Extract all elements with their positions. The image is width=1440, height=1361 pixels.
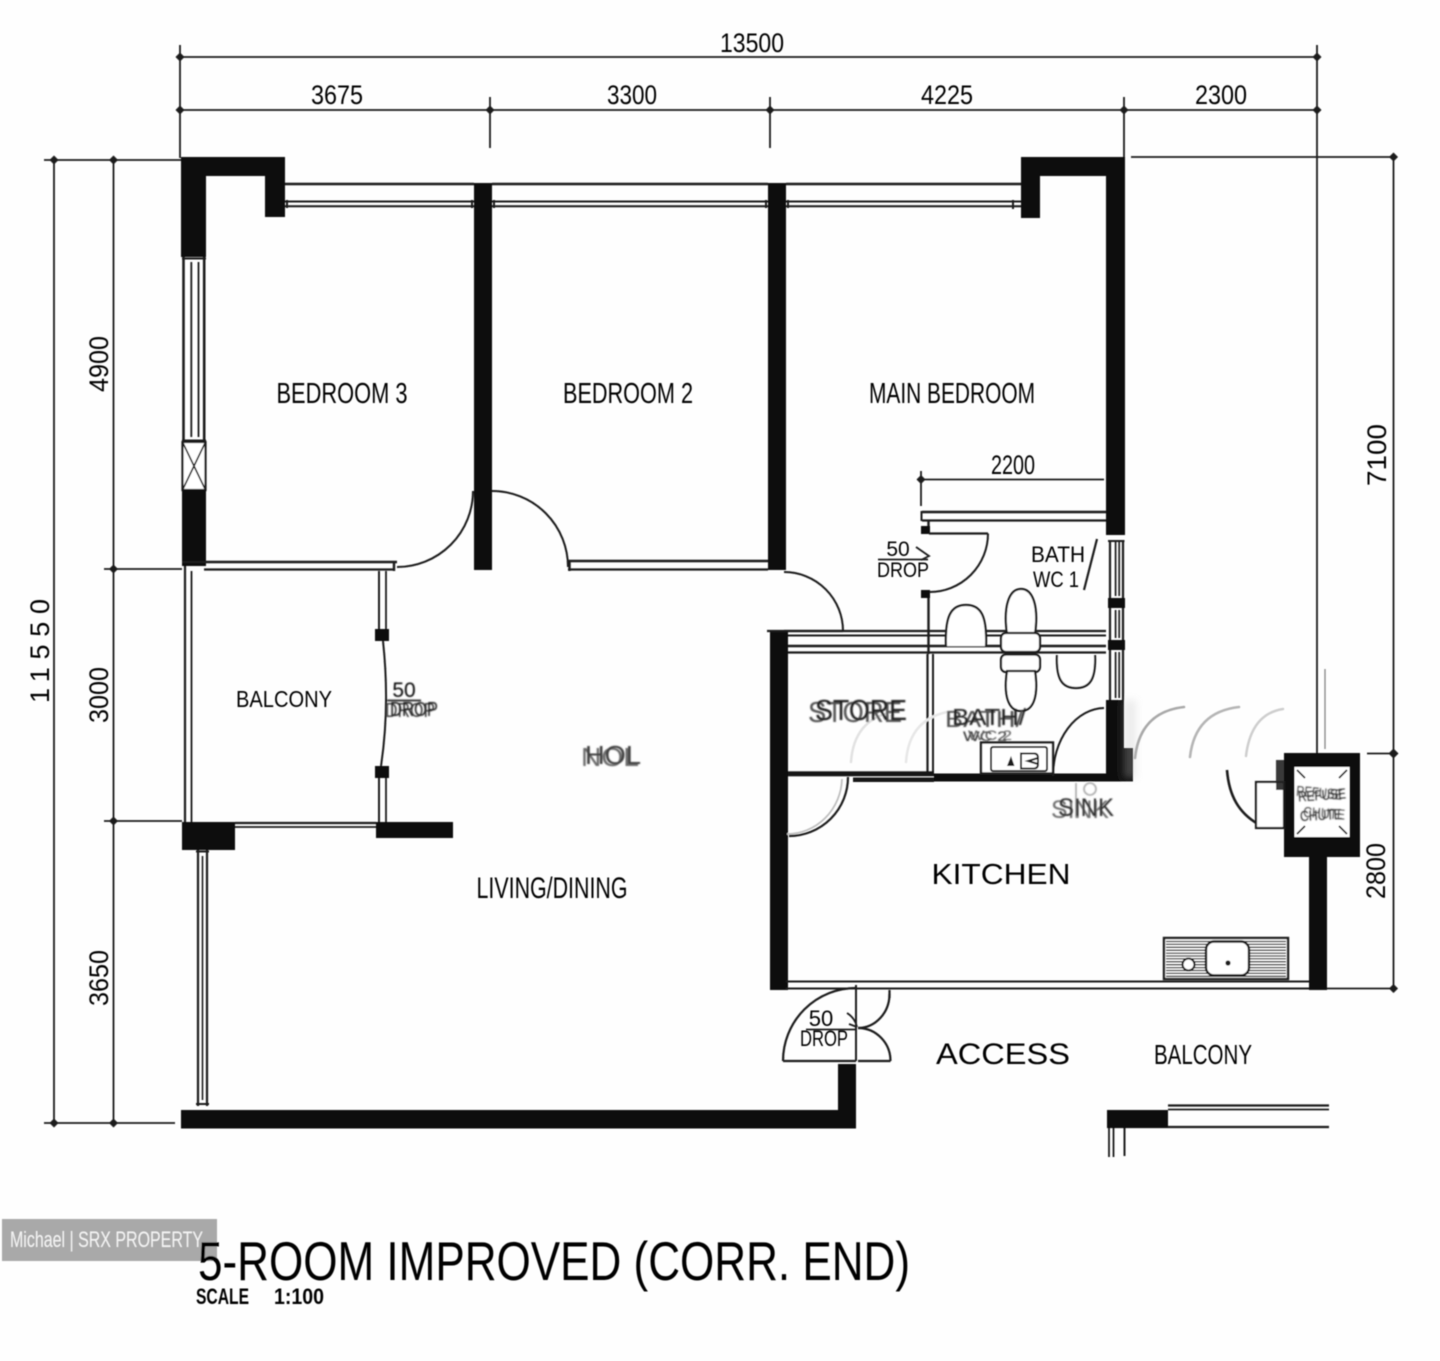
svg-text:BATH: BATH bbox=[1031, 542, 1085, 567]
svg-text:WC 2: WC 2 bbox=[968, 727, 1012, 743]
svg-text:BEDROOM 3: BEDROOM 3 bbox=[277, 378, 408, 410]
svg-text:LIVING/DINING: LIVING/DINING bbox=[477, 872, 628, 905]
svg-text:CHUTE: CHUTE bbox=[1303, 805, 1346, 824]
svg-text:DROP: DROP bbox=[390, 699, 438, 721]
svg-text:BEDROOM 2: BEDROOM 2 bbox=[563, 378, 693, 410]
svg-text:Michael | SRX PROPERTY: Michael | SRX PROPERTY bbox=[10, 1227, 203, 1252]
svg-text:2300: 2300 bbox=[1195, 80, 1247, 110]
svg-text:MAIN BEDROOM: MAIN BEDROOM bbox=[869, 378, 1035, 410]
svg-text:STORE: STORE bbox=[815, 695, 907, 727]
svg-text:2200: 2200 bbox=[991, 450, 1035, 480]
svg-text:5-ROOM IMPROVED (CORR. END): 5-ROOM IMPROVED (CORR. END) bbox=[198, 1230, 910, 1292]
svg-text:4225: 4225 bbox=[921, 80, 973, 110]
svg-text:1:100: 1:100 bbox=[274, 1284, 324, 1309]
svg-text:3000: 3000 bbox=[84, 667, 114, 723]
svg-text:HOL: HOL bbox=[585, 740, 641, 770]
svg-text:2800: 2800 bbox=[1361, 843, 1391, 899]
svg-text:WC 1: WC 1 bbox=[1033, 567, 1079, 592]
svg-text:BALCONY: BALCONY bbox=[236, 686, 332, 712]
svg-text:3300: 3300 bbox=[607, 80, 657, 110]
svg-text:BALCONY: BALCONY bbox=[1154, 1039, 1252, 1070]
svg-text:3650: 3650 bbox=[84, 950, 114, 1006]
svg-text:DROP: DROP bbox=[800, 1026, 848, 1051]
svg-text:3675: 3675 bbox=[311, 80, 363, 110]
svg-text:ACCESS: ACCESS bbox=[936, 1038, 1070, 1071]
svg-text:13500: 13500 bbox=[720, 28, 784, 58]
svg-text:SCALE: SCALE bbox=[196, 1284, 249, 1309]
svg-text:DROP: DROP bbox=[877, 559, 929, 582]
svg-text:KITCHEN: KITCHEN bbox=[932, 859, 1071, 891]
svg-text:7100: 7100 bbox=[1362, 424, 1392, 486]
svg-text:SINK: SINK bbox=[1058, 794, 1114, 822]
svg-text:4900: 4900 bbox=[84, 336, 114, 392]
svg-text:50: 50 bbox=[886, 538, 909, 561]
